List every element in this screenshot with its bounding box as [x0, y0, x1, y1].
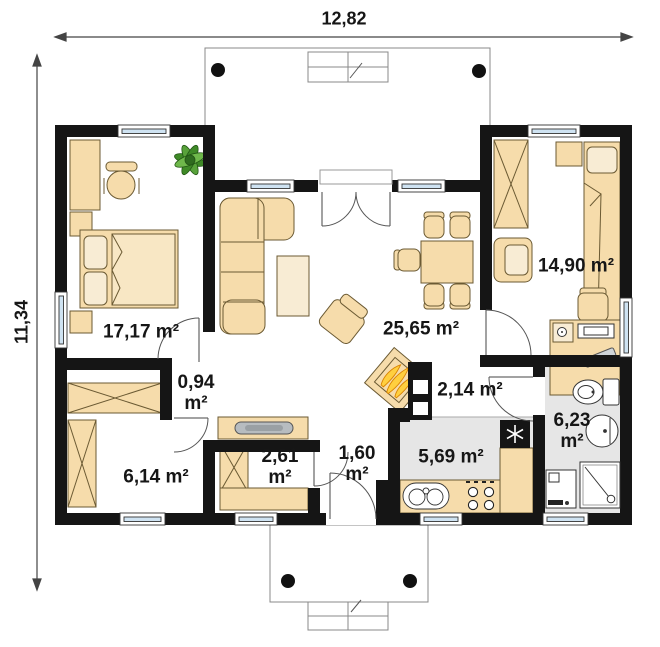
room-label-hallway: 2,14 m² [437, 380, 502, 401]
fridge [500, 420, 530, 448]
bedroom-left-furniture [70, 140, 207, 333]
console [220, 488, 308, 510]
dimension-left [33, 55, 41, 590]
dimension-width-label: 12,82 [321, 9, 366, 30]
dining-set [394, 212, 473, 309]
pillow [84, 272, 107, 305]
vestibule-door [174, 418, 208, 452]
column-dot-icon [472, 64, 486, 78]
room-label-entry-hall: 1,60 m² [339, 443, 376, 485]
column-dot-icon [281, 574, 295, 588]
window [247, 180, 294, 192]
chair [450, 284, 470, 306]
living-room-furniture [220, 198, 473, 412]
room-label-bathroom: 6,23 m² [554, 410, 591, 452]
plant-icon [173, 143, 206, 176]
room-label-kitchen: 5,69 m² [418, 447, 483, 468]
chair [398, 249, 420, 271]
room-label-vestibule: 0,94 m² [178, 372, 215, 414]
window [420, 513, 462, 525]
room-label-living-room: 25,65 m² [383, 319, 459, 340]
blanket [112, 234, 175, 305]
floor-plan: 12,82 11,34 17,17 m² 0,94 m² 6,14 m² 2,6… [0, 0, 660, 647]
coffee-table [277, 256, 309, 316]
desk [70, 140, 100, 210]
wardrobe [68, 383, 162, 413]
counter [500, 448, 533, 513]
armchair [494, 238, 532, 282]
dimension-top [55, 33, 632, 41]
nightstand [70, 311, 92, 333]
room-label-bedroom-left: 17,17 m² [103, 322, 179, 343]
porch [270, 525, 428, 630]
window [235, 513, 277, 525]
room-label-closet: 2,61 m² [262, 446, 299, 488]
pillow [84, 236, 107, 269]
terrace [205, 48, 490, 181]
window [543, 513, 588, 525]
room-label-wardrobe-room: 6,14 m² [123, 467, 188, 488]
kitchen-sink-icon [403, 483, 449, 509]
chair [424, 284, 444, 306]
wardrobe [494, 140, 528, 228]
column-dot-icon [403, 574, 417, 588]
chair [450, 216, 470, 238]
window [55, 292, 67, 348]
window [528, 125, 580, 137]
toilet-icon [573, 379, 619, 405]
washbasin-icon [586, 415, 618, 447]
window [120, 513, 165, 525]
shower-icon [580, 462, 620, 508]
terrace-steps [308, 52, 388, 82]
pillow [587, 147, 617, 173]
room-label-bedroom-right: 14,90 m² [538, 256, 614, 277]
armchair [317, 290, 372, 346]
office-chair-back [106, 162, 137, 171]
wardrobe-room-furniture [68, 383, 162, 507]
double-bed [80, 230, 178, 308]
window [118, 125, 170, 137]
office-chair-seat [107, 171, 135, 199]
wardrobe [68, 420, 96, 507]
window [398, 180, 445, 192]
column-dot-icon [211, 63, 225, 77]
patio-double-door [318, 170, 392, 226]
nightstand [556, 142, 582, 166]
dining-table [421, 241, 473, 283]
chair [578, 293, 608, 321]
washing-machine-icon [546, 470, 576, 508]
chair [424, 216, 444, 238]
dimension-height-label: 11,34 [12, 300, 33, 344]
window [620, 298, 632, 357]
bedroom-right-door [486, 310, 531, 355]
floor-plan-drawing [0, 0, 660, 647]
porch-steps [308, 600, 388, 630]
radiator-icon [235, 422, 293, 434]
